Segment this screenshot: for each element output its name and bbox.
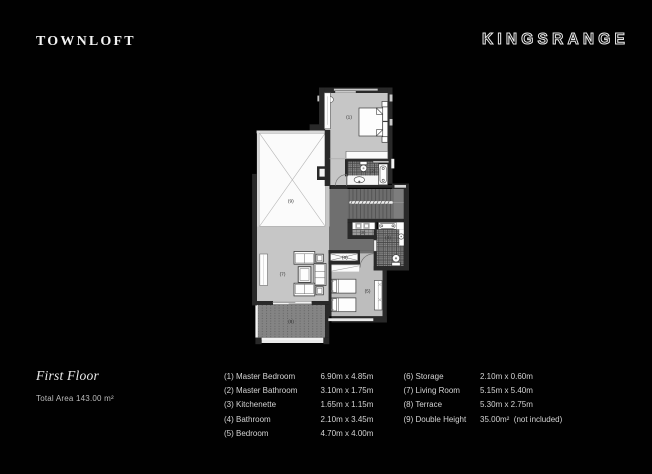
- svg-text:(2): (2): [370, 169, 376, 175]
- svg-text:(1): (1): [346, 115, 352, 121]
- svg-text:(7): (7): [280, 272, 286, 278]
- svg-text:(5): (5): [365, 289, 371, 295]
- svg-text:(6): (6): [342, 255, 348, 261]
- svg-text:(4): (4): [385, 235, 391, 241]
- svg-text:(9): (9): [288, 199, 294, 205]
- svg-text:(8): (8): [288, 319, 294, 325]
- svg-text:(3): (3): [360, 230, 366, 236]
